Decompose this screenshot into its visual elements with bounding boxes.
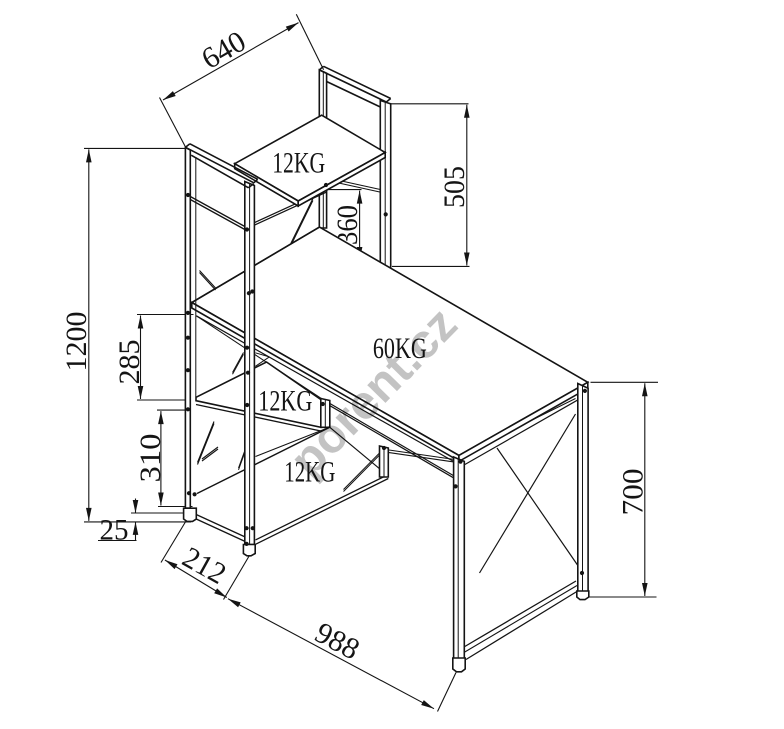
svg-text:310: 310 [134,434,167,483]
svg-text:12KG: 12KG [258,384,312,417]
svg-text:12KG: 12KG [284,455,335,488]
svg-text:700: 700 [616,469,649,516]
svg-text:1200: 1200 [60,312,93,372]
svg-text:60KG: 60KG [373,332,427,365]
svg-text:505: 505 [438,166,471,208]
svg-text:285: 285 [113,340,146,385]
svg-text:12KG: 12KG [272,146,325,179]
svg-text:25: 25 [100,513,129,546]
